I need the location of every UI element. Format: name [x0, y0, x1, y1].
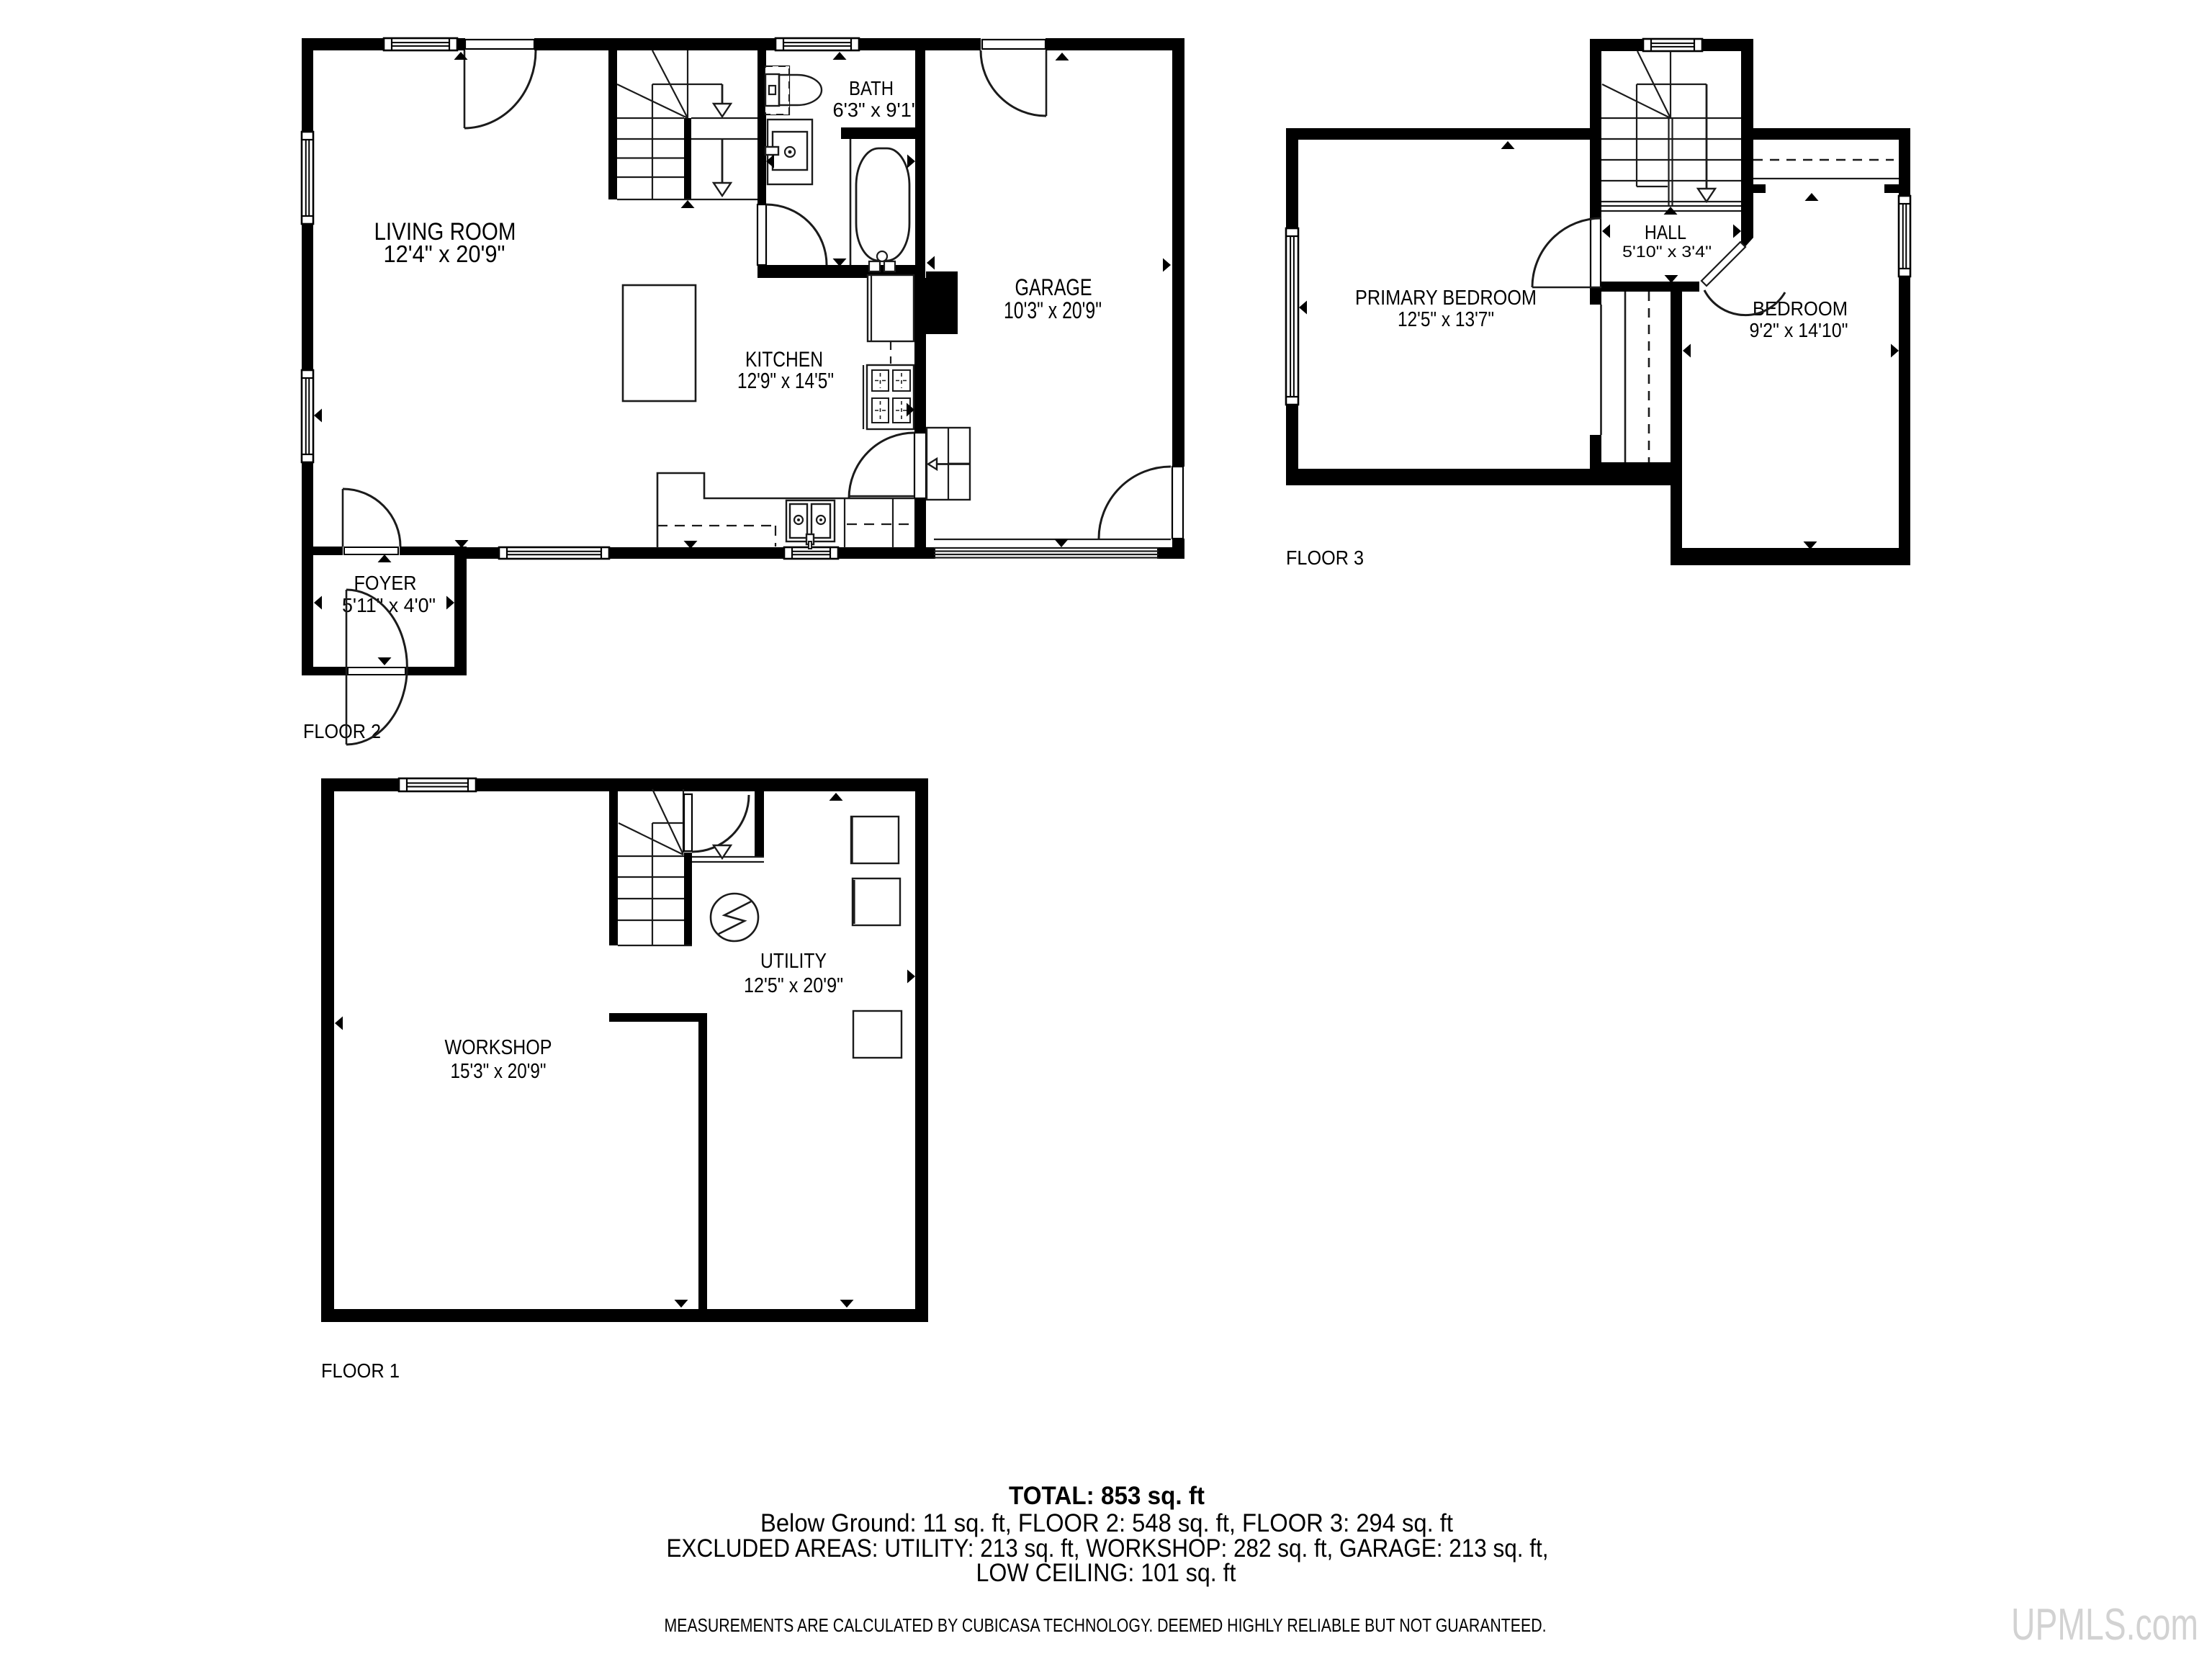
svg-text:12'4" x 20'9": 12'4" x 20'9" — [384, 240, 505, 267]
svg-text:WORKSHOP: WORKSHOP — [445, 1036, 552, 1059]
svg-text:12'5" x 20'9": 12'5" x 20'9" — [744, 974, 843, 997]
svg-text:12'5" x 13'7": 12'5" x 13'7" — [1398, 308, 1494, 331]
svg-text:12'9" x 14'5": 12'9" x 14'5" — [737, 368, 834, 393]
svg-text:6'3" x 9'1": 6'3" x 9'1" — [833, 99, 919, 121]
svg-text:15'3" x 20'9": 15'3" x 20'9" — [451, 1060, 547, 1083]
svg-text:LOW CEILING: 101 sq. ft: LOW CEILING: 101 sq. ft — [976, 1559, 1236, 1587]
svg-text:FLOOR 3: FLOOR 3 — [1286, 547, 1364, 569]
svg-text:5'10" x 3'4": 5'10" x 3'4" — [1622, 243, 1712, 261]
svg-text:MEASUREMENTS ARE CALCULATED BY: MEASUREMENTS ARE CALCULATED BY CUBICASA … — [665, 1614, 1547, 1636]
svg-text:UTILITY: UTILITY — [760, 950, 827, 973]
svg-text:FOYER: FOYER — [354, 572, 417, 594]
svg-text:10'3" x 20'9": 10'3" x 20'9" — [1004, 297, 1102, 323]
svg-text:9'2" x 14'10": 9'2" x 14'10" — [1750, 319, 1848, 341]
svg-text:PRIMARY BEDROOM: PRIMARY BEDROOM — [1355, 287, 1537, 310]
svg-text:BATH: BATH — [849, 77, 894, 99]
svg-text:TOTAL: 853 sq. ft: TOTAL: 853 sq. ft — [1009, 1482, 1205, 1510]
svg-text:UPMLS.com: UPMLS.com — [2011, 1600, 2198, 1650]
svg-text:Below Ground: 11 sq. ft, FLOOR: Below Ground: 11 sq. ft, FLOOR 2: 548 sq… — [760, 1509, 1453, 1537]
svg-text:HALL: HALL — [1645, 221, 1686, 243]
svg-text:FLOOR 1: FLOOR 1 — [321, 1359, 400, 1382]
svg-text:GARAGE: GARAGE — [1015, 274, 1092, 300]
